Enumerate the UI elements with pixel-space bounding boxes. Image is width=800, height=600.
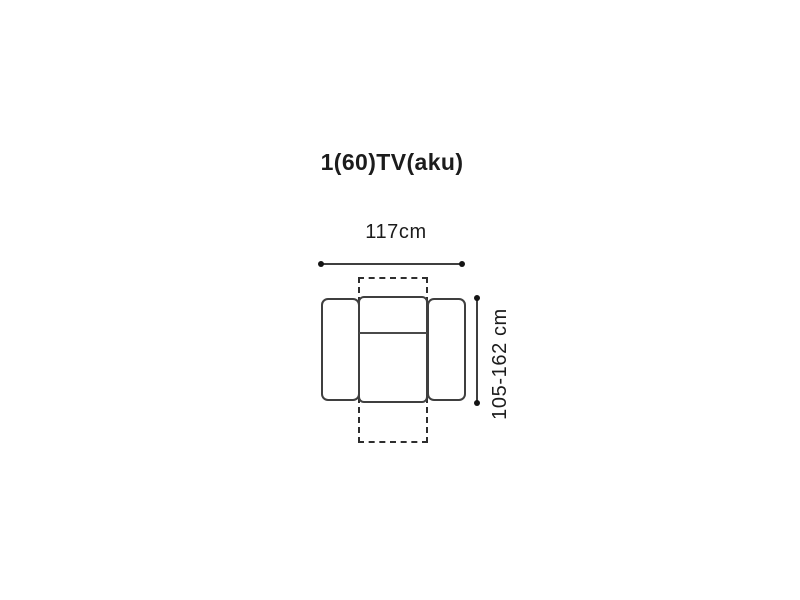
- diagram-title: 1(60)TV(aku): [280, 148, 504, 176]
- furniture-diagram: 1(60)TV(aku) 117cm 105-162 cm: [0, 0, 800, 600]
- width-dimension-endpoint-dot-left: [318, 261, 324, 267]
- seat-body: [358, 296, 428, 403]
- width-dimension-label: 117cm: [320, 219, 472, 245]
- height-dimension-label: 105-162 cm: [487, 299, 513, 429]
- width-dimension-endpoint-dot-right: [459, 261, 465, 267]
- right-armrest: [427, 298, 466, 401]
- height-dimension-endpoint-dot-top: [474, 295, 480, 301]
- backrest-divider-line: [359, 332, 427, 334]
- left-armrest: [321, 298, 360, 401]
- width-dimension-line: [321, 263, 462, 265]
- height-dimension-endpoint-dot-bottom: [474, 400, 480, 406]
- height-dimension-line: [476, 298, 478, 403]
